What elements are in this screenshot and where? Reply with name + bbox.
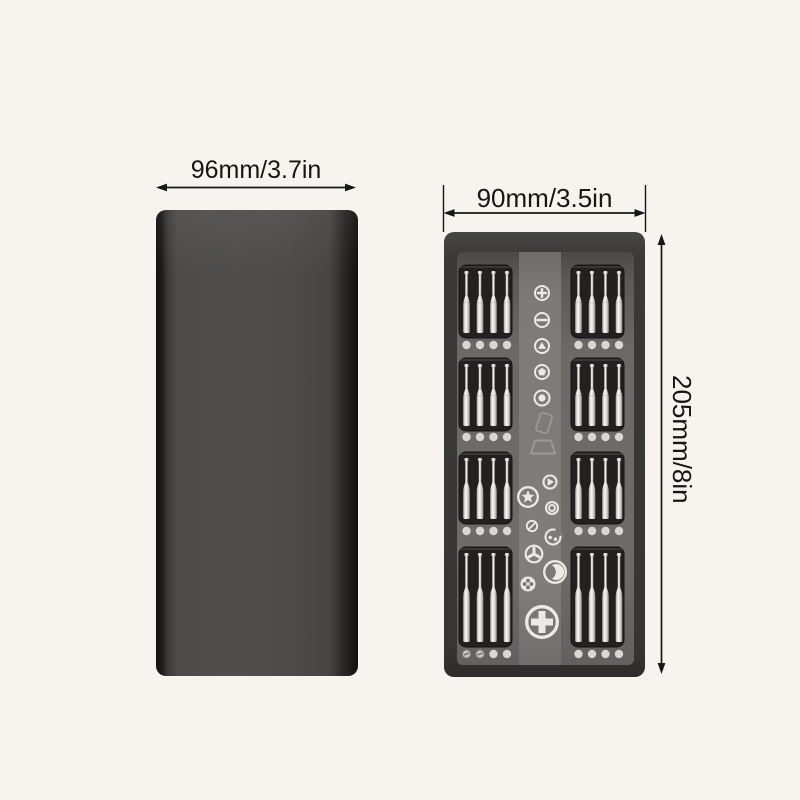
open-case-width-arrow xyxy=(442,185,647,233)
clover-icon xyxy=(521,577,536,592)
bit-hole xyxy=(574,527,582,535)
bit-hole xyxy=(489,650,497,658)
phillips-small-icon xyxy=(535,286,549,300)
bit-hole xyxy=(462,341,470,349)
bit-slot-block xyxy=(459,265,512,338)
bit-hole xyxy=(574,433,582,441)
bit-slot-block xyxy=(571,265,624,338)
product-dimension-diagram: 96mm/3.7in 90mm/3.5in 205mm/8in xyxy=(0,0,800,800)
closed-case-image xyxy=(156,210,358,676)
bit-hole xyxy=(503,341,511,349)
bit-hole xyxy=(615,527,623,535)
open-case-height-label: 205mm/8in xyxy=(666,375,697,504)
bit-slot-block xyxy=(571,358,624,431)
bit-slot-block xyxy=(459,547,512,647)
bit-hole xyxy=(476,433,484,441)
bit-slot-block xyxy=(459,452,512,524)
phillips-large-icon xyxy=(527,607,558,638)
open-case-graphic xyxy=(444,232,645,677)
bit-hole xyxy=(601,433,609,441)
bit-slot-block xyxy=(571,547,624,647)
bit-hole xyxy=(615,433,623,441)
bit-hole xyxy=(588,527,596,535)
bit-hole xyxy=(462,433,470,441)
bit-hole xyxy=(601,650,609,658)
bit-hole xyxy=(601,341,609,349)
screw-dot xyxy=(476,650,484,658)
bit-hole xyxy=(574,650,582,658)
bit-hole xyxy=(615,650,623,658)
bit-hole xyxy=(476,341,484,349)
bit-hole xyxy=(462,527,470,535)
bit-slot-block xyxy=(571,452,624,524)
screw-dot xyxy=(462,650,470,658)
bit-hole xyxy=(588,433,596,441)
bit-hole xyxy=(503,527,511,535)
bit-hole xyxy=(574,341,582,349)
bit-hole xyxy=(503,650,511,658)
bit-hole xyxy=(601,527,609,535)
bit-hole xyxy=(588,650,596,658)
bit-hole xyxy=(489,433,497,441)
closed-case-width-arrow xyxy=(156,181,356,194)
open-case-image xyxy=(444,232,645,677)
bit-hole xyxy=(476,527,484,535)
bit-hole xyxy=(615,341,623,349)
bit-hole xyxy=(489,527,497,535)
bit-hole xyxy=(489,341,497,349)
bit-slot-block xyxy=(459,358,512,431)
bit-hole xyxy=(503,433,511,441)
bit-hole xyxy=(588,341,596,349)
